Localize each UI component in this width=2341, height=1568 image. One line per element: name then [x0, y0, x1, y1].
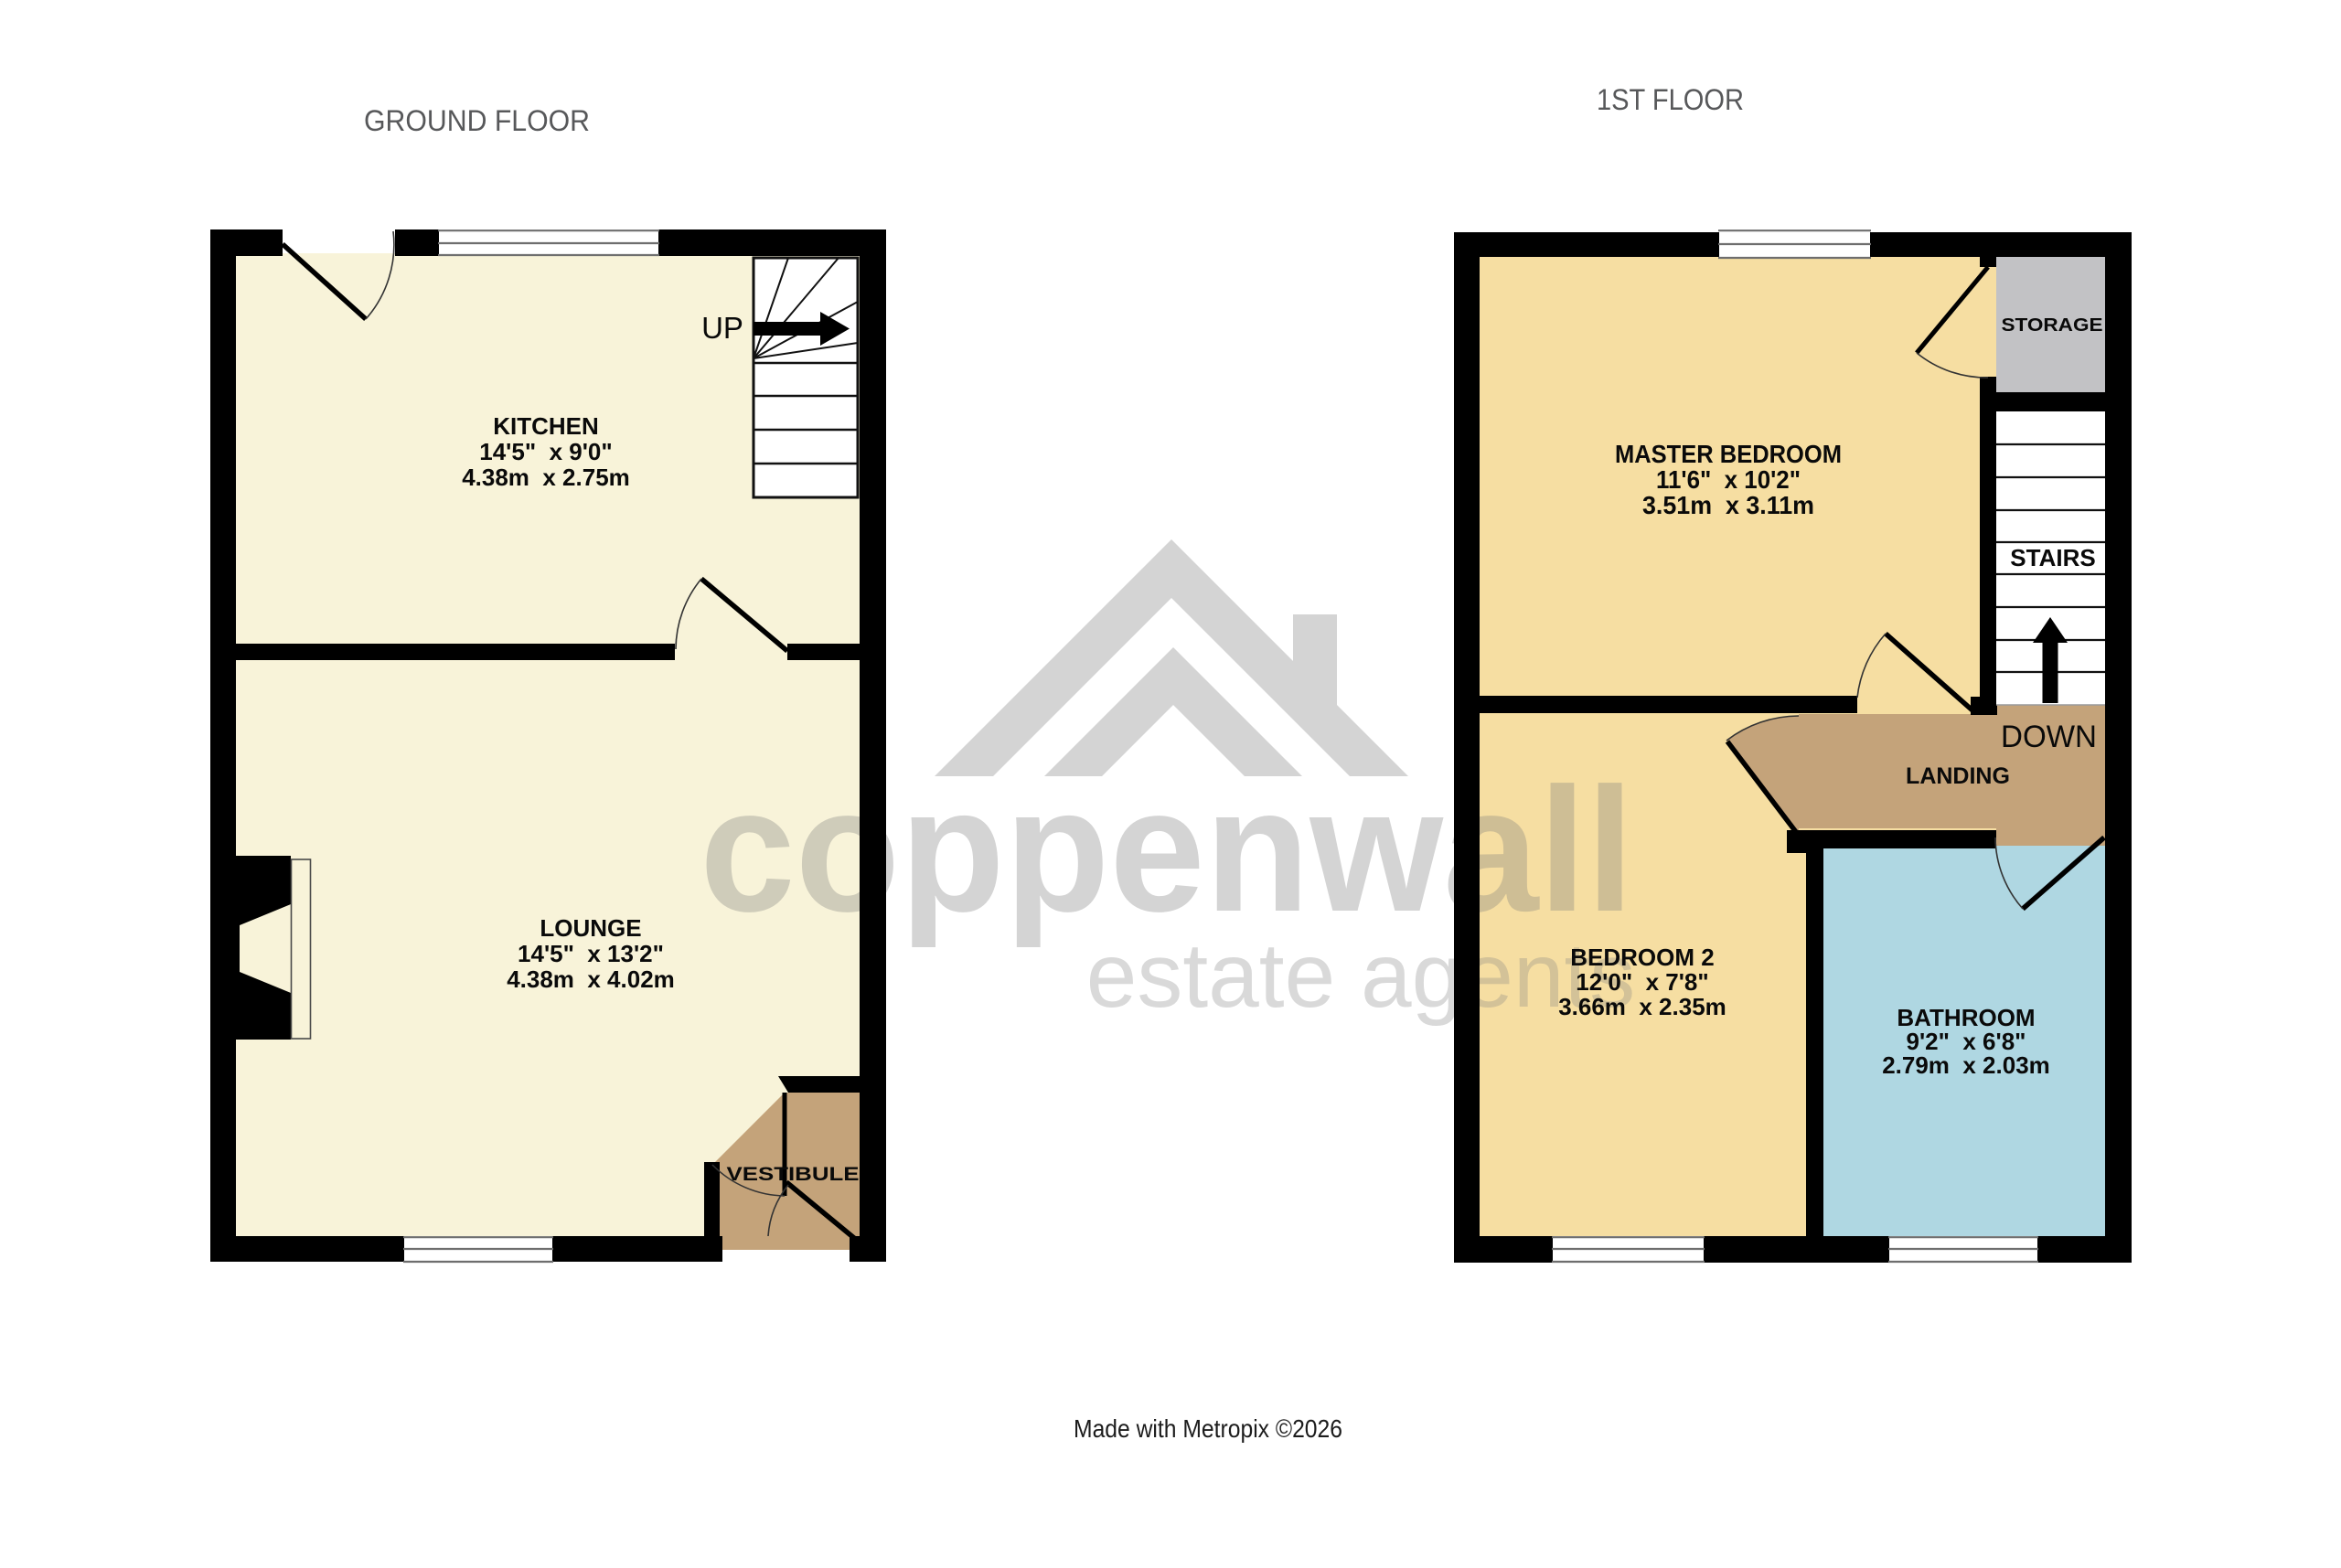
svg-text:GROUND FLOOR: GROUND FLOOR: [364, 104, 590, 137]
svg-text:STORAGE: STORAGE: [2002, 315, 2103, 336]
svg-text:4.38m x 2.75m: 4.38m x 2.75m: [462, 464, 630, 491]
svg-text:3.66m x 2.35m: 3.66m x 2.35m: [1558, 993, 1726, 1020]
svg-text:1ST FLOOR: 1ST FLOOR: [1597, 83, 1744, 116]
svg-text:14'5" x 13'2": 14'5" x 13'2": [518, 940, 664, 967]
svg-text:MASTER BEDROOM: MASTER BEDROOM: [1615, 440, 1842, 468]
svg-text:estate agents: estate agents: [1086, 924, 1635, 1027]
svg-text:STAIRS: STAIRS: [2010, 544, 2095, 571]
svg-text:2.79m x 2.03m: 2.79m x 2.03m: [1882, 1051, 2050, 1079]
svg-text:3.51m x 3.11m: 3.51m x 3.11m: [1642, 491, 1814, 519]
svg-text:LOUNGE: LOUNGE: [540, 914, 641, 942]
svg-text:KITCHEN: KITCHEN: [493, 412, 599, 440]
svg-text:VESTIBULE: VESTIBULE: [727, 1164, 860, 1185]
svg-text:12'0" x 7'8": 12'0" x 7'8": [1576, 968, 1708, 996]
svg-text:Made with Metropix ©2026: Made with Metropix ©2026: [1074, 1414, 1342, 1443]
svg-text:4.38m x 4.02m: 4.38m x 4.02m: [507, 965, 675, 993]
svg-text:14'5" x 9'0": 14'5" x 9'0": [479, 438, 612, 465]
svg-text:DOWN: DOWN: [2001, 720, 2097, 754]
svg-text:11'6" x 10'2": 11'6" x 10'2": [1656, 465, 1801, 494]
svg-text:LANDING: LANDING: [1906, 763, 2010, 789]
svg-text:UP: UP: [701, 311, 743, 345]
svg-text:BEDROOM 2: BEDROOM 2: [1570, 944, 1714, 971]
svg-text:coppenwall: coppenwall: [700, 752, 1633, 949]
